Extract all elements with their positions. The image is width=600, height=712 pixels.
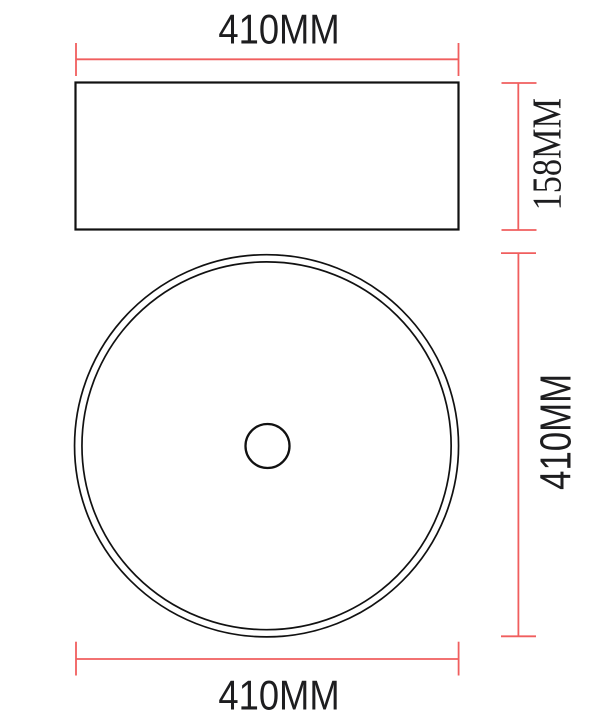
svg-text:158MM: 158MM [524,98,570,210]
svg-text:410MM: 410MM [218,6,339,53]
svg-text:410MM: 410MM [218,672,339,712]
svg-text:410MM: 410MM [532,374,581,490]
